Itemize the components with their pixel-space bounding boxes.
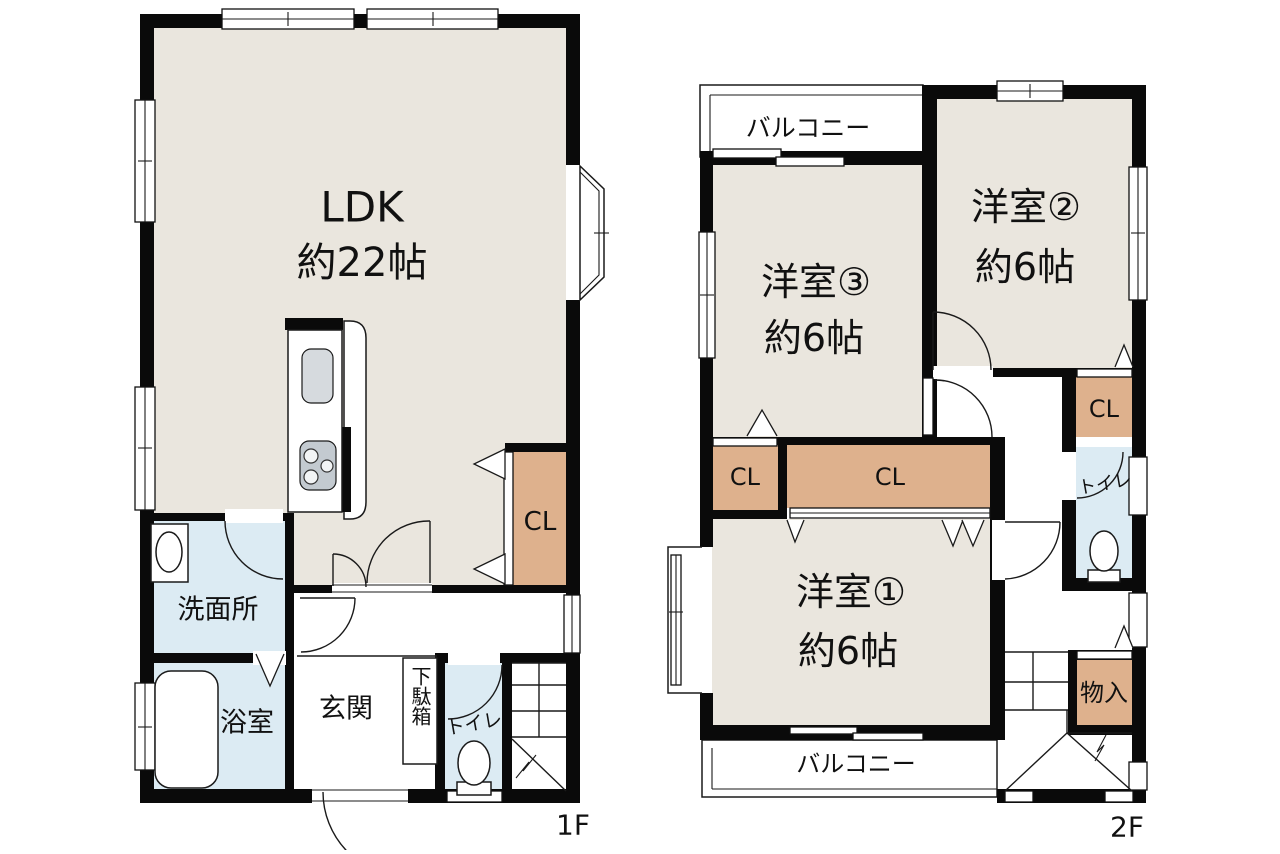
window xyxy=(222,9,354,29)
kitchen-counter xyxy=(285,318,366,519)
room3-size-label: 約6帖 xyxy=(764,316,864,360)
window xyxy=(367,9,498,29)
window xyxy=(1129,167,1147,300)
toilet1f-fixture xyxy=(457,741,491,795)
balcony-bottom-label: バルコニー xyxy=(796,750,916,778)
floor2-plan: バルコニー 洋室③ 約6帖 洋室② 約6帖 洋室① 約6帖 CL CL CL ト… xyxy=(668,81,1147,844)
window xyxy=(997,81,1063,101)
hall-entrance-door xyxy=(300,598,355,652)
closet1f-label: CL xyxy=(524,507,557,537)
kitchen-sink xyxy=(302,349,333,403)
window xyxy=(564,595,580,653)
room1-door xyxy=(992,520,1060,580)
floor2-label: 2F xyxy=(1110,811,1144,844)
window xyxy=(135,683,155,770)
window xyxy=(135,100,155,222)
storage-sliding-door xyxy=(1077,626,1133,659)
window xyxy=(1129,593,1147,647)
washroom-sink xyxy=(151,524,188,582)
bay-window-room1 xyxy=(668,547,702,693)
window xyxy=(135,387,155,510)
closet-center-label: CL xyxy=(875,463,906,491)
room1-size-label: 約6帖 xyxy=(798,629,898,673)
closet-left-label: CL xyxy=(730,463,761,491)
room1-label: 洋室① xyxy=(796,570,906,614)
floor-plan-page: LDK 約22帖 洗面所 浴室 玄関 下駄箱 トイレ CL 1F xyxy=(0,0,1280,850)
bathtub xyxy=(155,671,218,788)
room2-size-label: 約6帖 xyxy=(975,245,1075,289)
room2-label: 洋室② xyxy=(971,185,1081,229)
floor1-plan: LDK 約22帖 洗面所 浴室 玄関 下駄箱 トイレ CL 1F xyxy=(135,9,609,850)
ldk-label: LDK xyxy=(320,183,405,232)
shoe-cabinet-label: 下駄箱 xyxy=(408,666,432,726)
window xyxy=(1105,791,1133,802)
window xyxy=(1129,762,1147,790)
kitchen-stove xyxy=(300,441,336,490)
ldk-size-label: 約22帖 xyxy=(297,240,428,286)
storage-label: 物入 xyxy=(1080,679,1128,707)
entrance-label: 玄関 xyxy=(319,694,373,725)
closet-right-label: CL xyxy=(1089,395,1120,423)
room2-floor xyxy=(937,99,1132,368)
floor-plan-drawing: LDK 約22帖 洗面所 浴室 玄関 下駄箱 トイレ CL 1F xyxy=(0,0,1280,850)
bay-window xyxy=(580,166,609,300)
front-entrance-door xyxy=(312,788,408,850)
room1-floor xyxy=(712,519,990,725)
bath-label: 浴室 xyxy=(220,708,274,739)
window xyxy=(1005,791,1033,802)
window xyxy=(699,232,715,358)
room3-label: 洋室③ xyxy=(761,260,871,304)
room3-floor xyxy=(712,165,922,443)
toilet2f-fixture xyxy=(1088,531,1120,582)
stairs-1f xyxy=(512,663,566,791)
balcony-top-label: バルコニー xyxy=(746,114,871,143)
room3-door xyxy=(923,378,992,437)
washroom-label: 洗面所 xyxy=(178,595,259,626)
floor1-label: 1F xyxy=(556,809,590,842)
